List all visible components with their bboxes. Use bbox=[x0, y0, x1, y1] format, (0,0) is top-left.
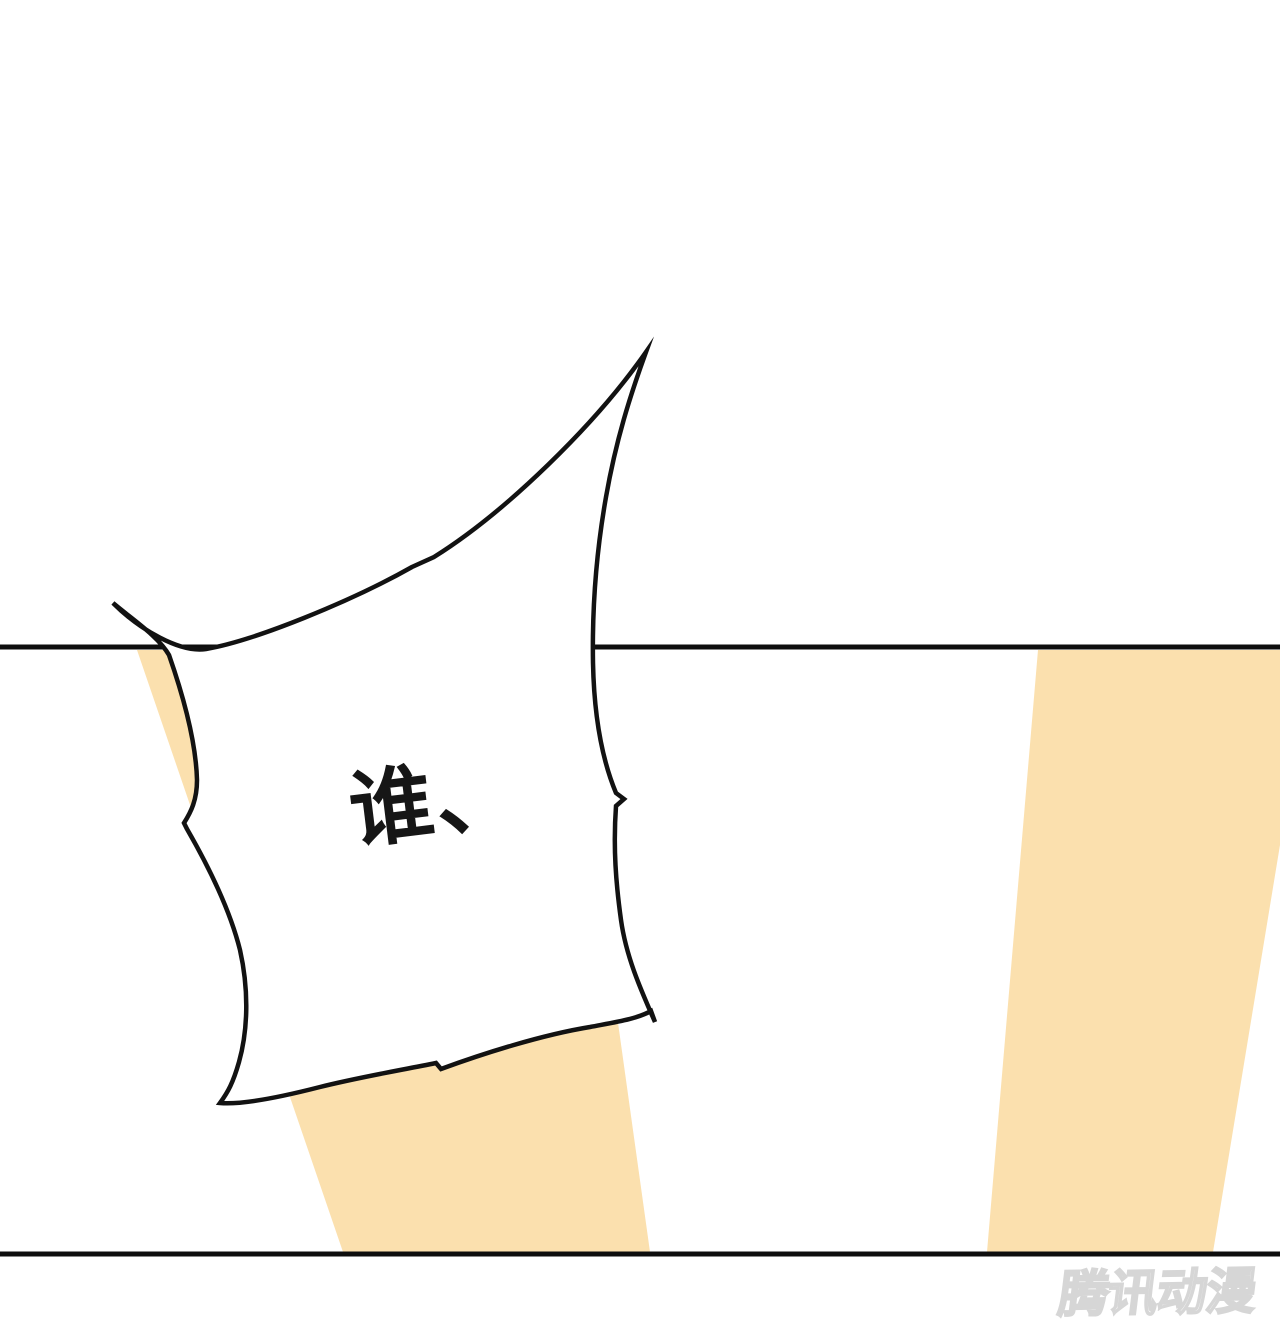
tencent-comics-watermark: 腾讯动漫 bbox=[1048, 1261, 1266, 1329]
comic-page: 谁、 腾讯动漫 bbox=[0, 0, 1280, 1344]
panel-artwork bbox=[0, 0, 1280, 1344]
